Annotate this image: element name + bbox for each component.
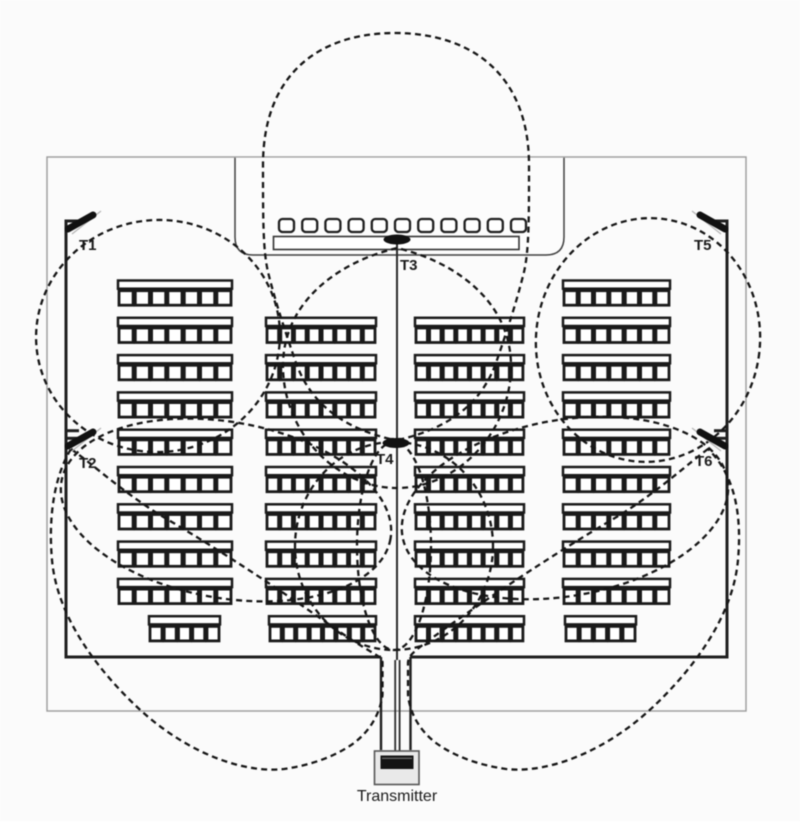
svg-text:T1: T1: [79, 237, 97, 254]
svg-text:T5: T5: [694, 237, 712, 254]
svg-text:T6: T6: [695, 453, 713, 470]
svg-text:T3: T3: [400, 257, 418, 274]
svg-text:Transmitter: Transmitter: [357, 788, 438, 805]
svg-text:T2: T2: [79, 455, 97, 472]
svg-text:T4: T4: [376, 451, 394, 468]
